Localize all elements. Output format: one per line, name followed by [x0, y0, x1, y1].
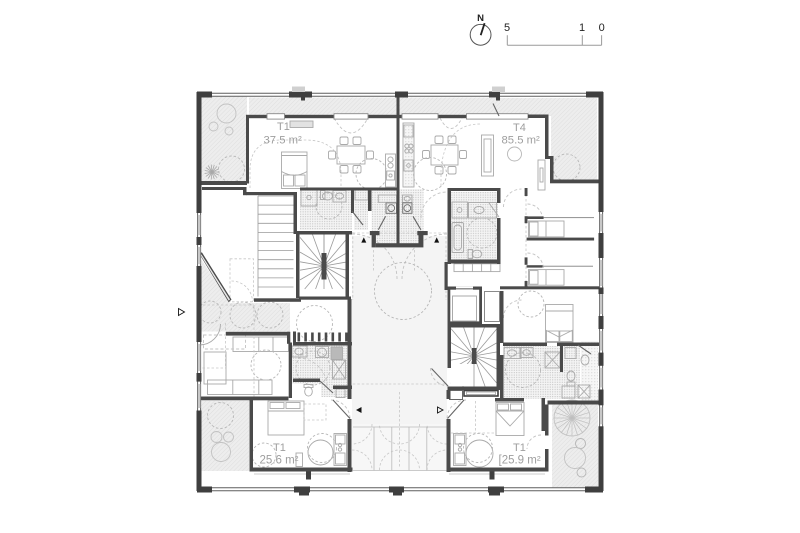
svg-text:1: 1 — [579, 22, 585, 34]
svg-text:T1: T1 — [513, 442, 526, 454]
svg-text:N: N — [477, 13, 484, 24]
svg-text:T4: T4 — [513, 122, 526, 134]
svg-text:85.5 m²: 85.5 m² — [502, 135, 541, 147]
svg-text:T1: T1 — [277, 121, 290, 133]
svg-text:[25.9 m²: [25.9 m² — [499, 455, 541, 467]
svg-text:25.6 m²: 25.6 m² — [260, 455, 299, 467]
svg-text:5: 5 — [504, 22, 510, 34]
svg-text:T1: T1 — [273, 442, 286, 454]
svg-text:37.5 m²: 37.5 m² — [264, 135, 303, 147]
svg-text:0: 0 — [599, 22, 605, 34]
